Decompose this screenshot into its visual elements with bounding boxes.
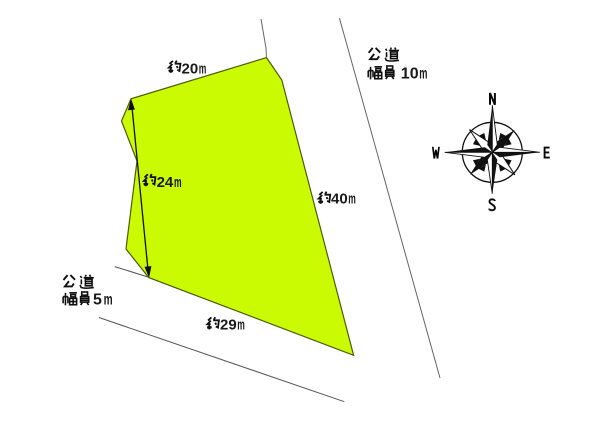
svg-text:40: 40 [331,190,348,207]
svg-text:m: m [348,190,356,207]
svg-text:10: 10 [401,66,419,83]
svg-text:m: m [237,316,245,333]
svg-text:m: m [199,60,207,77]
svg-text:m: m [104,292,113,309]
svg-text:m: m [419,66,427,83]
svg-text:24: 24 [157,174,174,191]
svg-text:5: 5 [93,292,102,309]
svg-text:m: m [174,174,182,191]
svg-text:29: 29 [220,316,237,333]
svg-text:20: 20 [182,60,199,77]
